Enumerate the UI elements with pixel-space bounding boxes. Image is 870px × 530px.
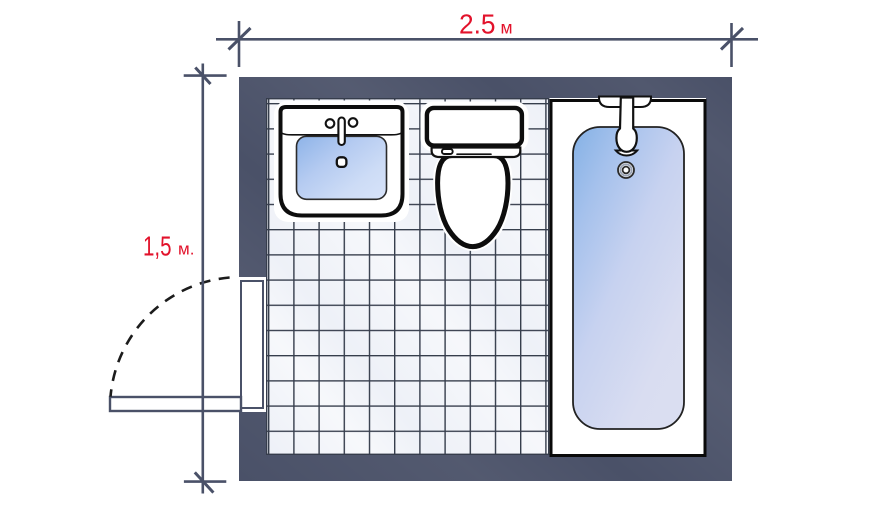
svg-text:1,5: 1,5 (143, 231, 172, 262)
svg-text:м.: м. (178, 240, 194, 259)
svg-text:м: м (501, 18, 513, 38)
svg-text:2.5: 2.5 (459, 9, 496, 40)
